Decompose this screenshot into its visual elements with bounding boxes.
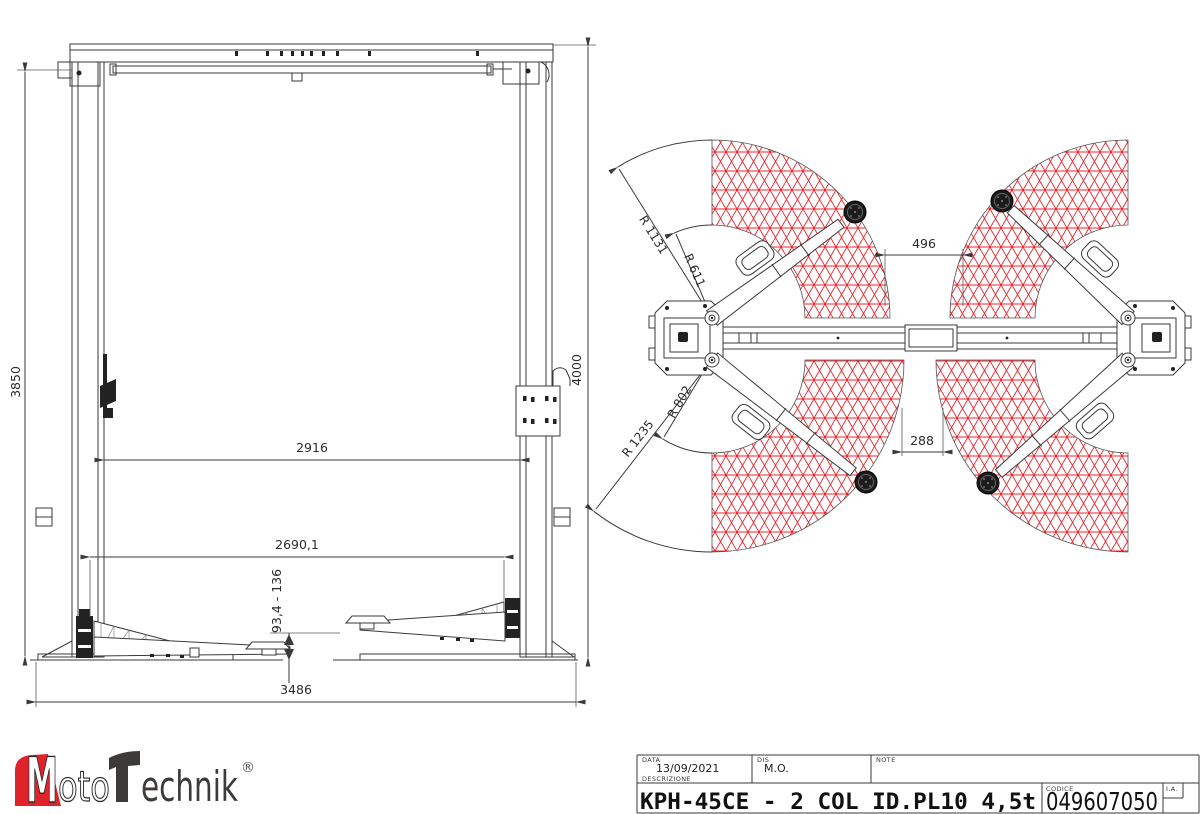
top-view: R 1131 R 611 R 1235 R 802 [594, 140, 1191, 552]
dim-radius-front-max: R 1131 [636, 213, 671, 257]
field-dis-value: M.O. [764, 762, 789, 775]
dim-base-width: 3486 [280, 682, 312, 697]
dim-radius-front-min: R 611 [681, 252, 708, 290]
pad-rear-right [977, 472, 999, 494]
carriage-right [346, 598, 520, 642]
post-right-track [526, 62, 546, 657]
crossbeam-holes [235, 51, 479, 56]
dim-gap-rear: 288 [910, 433, 934, 448]
logo-letter-t [109, 751, 140, 802]
sync-rod-bracket [292, 73, 302, 81]
field-descrizione-label: DESCRIZIONE [642, 775, 691, 783]
dim-clear-width: 2916 [296, 440, 328, 455]
beam-cap-left [70, 62, 100, 86]
pad-front-left [844, 201, 866, 223]
field-note-label: NOTE [876, 756, 896, 764]
lift-drawing-svg: 3850 4000 2916 2690,1 93,4 - 136 3486 [0, 0, 1200, 814]
post-left [72, 62, 104, 657]
sync-rod [113, 66, 491, 73]
control-box [516, 386, 560, 436]
dim-radius-rear-min: R 802 [665, 383, 695, 420]
mototechnik-logo: M oto echnik ® [15, 744, 255, 814]
dim-overall-height-left: 3850 [8, 366, 23, 398]
dim-pad-height-range: 93,4 - 136 [269, 569, 284, 633]
logo-letter-m: M [26, 744, 58, 814]
title-block: DATA 13/09/2021 DIS M.O. NOTE DESCRIZION… [637, 755, 1199, 814]
logo-registered-mark: ® [241, 760, 255, 776]
beam-cap-right-bolt [526, 69, 531, 74]
field-data-value: 13/09/2021 [656, 762, 719, 775]
control-bracket [553, 368, 570, 386]
field-descrizione-value: KPH-45CE - 2 COL ID.PL10 4,5t [640, 790, 1036, 814]
pad-rear-left [855, 471, 877, 493]
pad-front-right [991, 190, 1013, 212]
beam-cap-right [503, 62, 539, 84]
post-left-track [78, 62, 98, 657]
post-right [520, 62, 552, 657]
field-ia-label: I.A. [1166, 785, 1178, 793]
carriage-left [76, 609, 290, 658]
safety-latch [100, 354, 116, 418]
beam-cap-left-bolt [77, 71, 82, 76]
dim-drive-width: 2690,1 [275, 537, 319, 552]
field-codice-value: 049607050 [1046, 787, 1158, 814]
logo-oto: oto [58, 762, 110, 811]
logo-echnik: echnik [141, 762, 238, 811]
beam-cap-right-hook [541, 62, 549, 82]
front-view [30, 44, 578, 660]
dim-gap-front: 496 [912, 236, 936, 251]
crossbeam-plan [700, 325, 1140, 351]
dim-overall-height-right: 4000 [569, 354, 584, 386]
technical-drawing-page: 3850 4000 2916 2690,1 93,4 - 136 3486 [0, 0, 1200, 814]
